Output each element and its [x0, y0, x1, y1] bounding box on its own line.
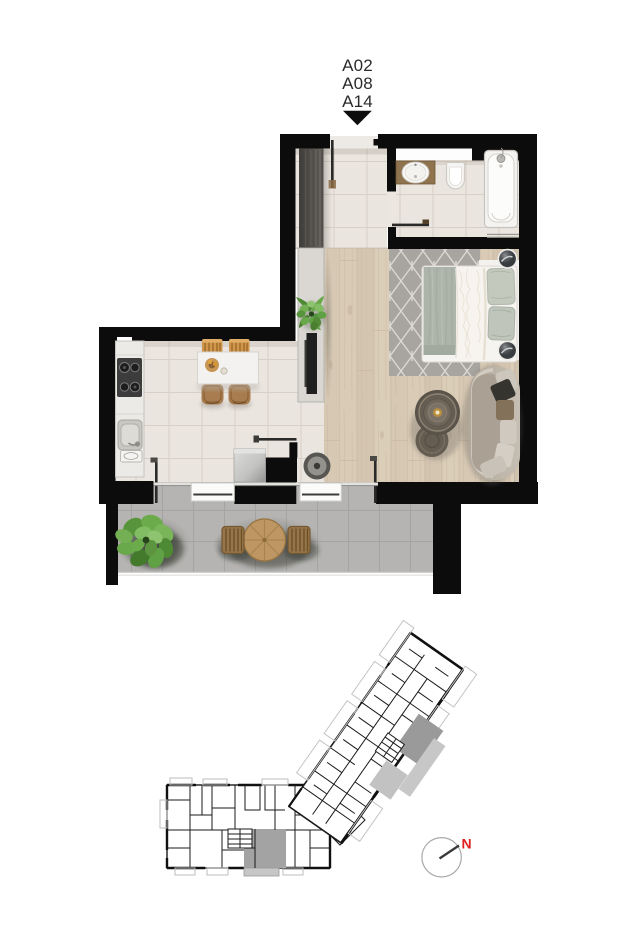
svg-text:A02: A02 [342, 56, 373, 75]
svg-text:N: N [462, 836, 472, 852]
svg-text:A14: A14 [342, 92, 373, 111]
svg-text:A08: A08 [342, 74, 373, 93]
